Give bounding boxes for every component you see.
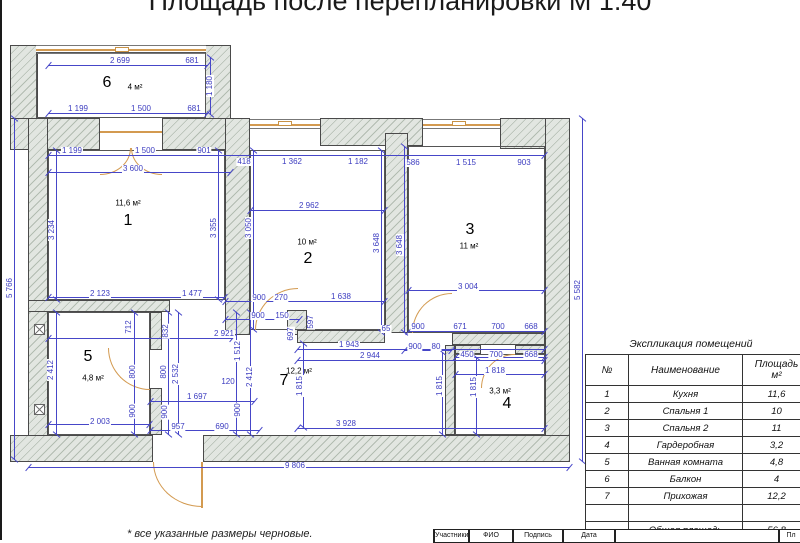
table-row: 2Спальня 110 [586, 403, 800, 420]
dimension-label: 1 515 [455, 159, 477, 167]
dimension-label: 832 [162, 323, 170, 338]
dimension-line [225, 301, 385, 302]
table-row [586, 505, 800, 522]
dimension-label: 3 648 [373, 232, 381, 254]
stamp-cell: Пл [779, 529, 800, 543]
dimension-label: 5 766 [6, 277, 14, 299]
explication-table: № Наименование Площадь м² 1Кухня11,62Спа… [585, 354, 800, 539]
row-num: 1 [586, 386, 629, 403]
table-row: 1Кухня11,6 [586, 386, 800, 403]
wall-segment [203, 435, 570, 462]
dimension-label: 120 [220, 378, 235, 386]
dimension-line [253, 150, 254, 330]
dimension-label: 2 412 [246, 366, 254, 388]
dimension-line [14, 118, 15, 460]
row-num: 4 [586, 437, 629, 454]
dimension-label: 800 [129, 364, 137, 379]
dimension-label: 681 [186, 105, 201, 113]
window-mark [452, 121, 466, 126]
dimension-label: 1 199 [67, 105, 89, 113]
dimension-label: 900 [234, 402, 242, 417]
dimension-label: 700 [490, 323, 505, 331]
dimension-label: 957 [170, 423, 185, 431]
dimension-label: 1 180 [206, 75, 214, 97]
row-area [743, 505, 800, 522]
room-number: 6 [103, 74, 112, 92]
dimension-label: 700 [488, 351, 503, 359]
table-row: 6Балкон4 [586, 471, 800, 488]
dimension-label: 2 412 [47, 359, 55, 381]
stamp-cell: Участники [433, 529, 469, 543]
row-name: Спальня 1 [629, 403, 743, 420]
dimension-label: 1 815 [470, 376, 478, 398]
dimension-label: 586 [405, 159, 420, 167]
room-number: 3 [466, 221, 475, 239]
dimension-label: 2 944 [359, 352, 381, 360]
row-name: Прихожая [629, 488, 743, 505]
stamp-cell: ФИО [469, 529, 513, 543]
dimension-label: 3 648 [396, 234, 404, 256]
row-area: 4 [743, 471, 800, 488]
room-area-label: 11 м² [460, 242, 479, 251]
dimension-line [408, 331, 545, 332]
room-area-label: 11,6 м² [115, 199, 140, 208]
room-area-label: 10 м² [297, 238, 316, 247]
stamp-cell: Дата [563, 529, 615, 543]
wall-segment [10, 118, 100, 150]
room-number: 5 [84, 348, 93, 366]
dimension-label: 150 [274, 312, 289, 320]
dimension-label: 3 600 [122, 165, 144, 173]
dimension-line [48, 113, 208, 114]
stamp-cell: Подпись [513, 529, 563, 543]
table-row: 5Ванная комната4,8 [586, 454, 800, 471]
dimension-label: 900 [407, 343, 422, 351]
row-area: 4,8 [743, 454, 800, 471]
dimension-label: 1 818 [484, 367, 506, 375]
row-name: Балкон [629, 471, 743, 488]
row-num: 3 [586, 420, 629, 437]
dimension-line [218, 150, 219, 300]
dimension-line [48, 65, 208, 66]
row-area: 11 [743, 420, 800, 437]
dimension-label: 270 [273, 294, 288, 302]
dimension-label: 900 [129, 403, 137, 418]
dimension-label: 2 962 [298, 202, 320, 210]
dimension-label: 697 [287, 326, 295, 341]
dimension-label: 2 123 [89, 290, 111, 298]
row-num [586, 505, 629, 522]
table-row: 3Спальня 211 [586, 420, 800, 437]
row-num: 5 [586, 454, 629, 471]
dimension-label: 2 699 [109, 57, 131, 65]
dimension-label: 1 199 [61, 147, 83, 155]
dimension-label: 800 [160, 364, 168, 379]
table-row: 7Прихожая12,2 [586, 488, 800, 505]
dimension-label: 901 [196, 147, 211, 155]
entrance-door-leaf [201, 462, 203, 508]
dimension-label: 2 003 [89, 418, 111, 426]
dimension-label: 900 [250, 312, 265, 320]
dimension-label: 1 500 [134, 147, 156, 155]
dimension-label: 1 500 [130, 105, 152, 113]
footnote: * все указанные размеры черновые. [127, 528, 313, 540]
dimension-line [48, 338, 233, 339]
dimension-label: 668 [523, 323, 538, 331]
title-block-strip: УчастникиФИОПодписьДатаПл [433, 529, 800, 543]
table-row: 4Гардеробная3,2 [586, 437, 800, 454]
row-name: Ванная комната [629, 454, 743, 471]
table-header-row: № Наименование Площадь м² [586, 355, 800, 386]
room-explication: Экспликация помещений № Наименование Пло… [585, 338, 800, 539]
dimension-label: 1 512 [234, 340, 242, 362]
dimension-line [150, 430, 260, 431]
dimension-line [250, 210, 385, 211]
dimension-label: 80 [431, 343, 442, 351]
window-mark [278, 121, 292, 126]
dimension-label: 65 [381, 325, 392, 333]
row-num: 7 [586, 488, 629, 505]
dimension-label: 712 [125, 319, 133, 334]
wall-segment [452, 333, 545, 345]
row-name: Гардеробная [629, 437, 743, 454]
row-area: 3,2 [743, 437, 800, 454]
dimension-label: 1 815 [436, 375, 444, 397]
dimension-label: 900 [251, 294, 266, 302]
dimension-line [56, 312, 57, 435]
dimension-label: 450 [459, 351, 474, 359]
dimension-label: 597 [307, 314, 315, 329]
dimension-label: 3 928 [335, 420, 357, 428]
dimension-label: 668 [523, 351, 538, 359]
room-area-label: 4 м² [128, 83, 143, 92]
dimension-label: 900 [410, 323, 425, 331]
dimension-label: 418 [236, 158, 251, 166]
room-number: 4 [503, 395, 512, 413]
col-header-num: № [586, 355, 629, 386]
wall-segment [10, 435, 153, 462]
balcony-door-threshold [100, 131, 162, 133]
row-num: 6 [586, 471, 629, 488]
room-area-label: 3,3 м² [489, 387, 511, 396]
dimension-line [582, 118, 583, 462]
wall-fixture-symbol [34, 404, 45, 415]
room-area-label: 4,8 м² [82, 374, 104, 383]
dimension-label: 1 943 [338, 341, 360, 349]
row-area: 10 [743, 403, 800, 420]
dimension-label: 2 532 [172, 363, 180, 385]
wall-segment [28, 300, 170, 312]
dimension-label: 3 355 [210, 217, 218, 239]
room-area-label: 12,2 м² [286, 367, 312, 376]
dimension-label: 903 [516, 159, 531, 167]
dimension-line [56, 150, 57, 300]
dimension-label: 1 362 [281, 158, 303, 166]
dimension-line [381, 150, 382, 333]
room-number: 2 [304, 250, 313, 268]
wall-fixture-symbol [34, 324, 45, 335]
wall-segment [545, 118, 570, 462]
dimension-label: 5 582 [574, 279, 582, 301]
row-num: 2 [586, 403, 629, 420]
row-name [629, 505, 743, 522]
row-area: 12,2 [743, 488, 800, 505]
dimension-label: 2 921 [213, 330, 235, 338]
dimension-label: 1 815 [296, 375, 304, 397]
col-header-area: Площадь м² [743, 355, 800, 386]
table-title: Экспликация помещений [585, 338, 797, 350]
row-name: Кухня [629, 386, 743, 403]
dimension-label: 1 638 [330, 293, 352, 301]
dimension-label: 1 182 [347, 158, 369, 166]
col-header-name: Наименование [629, 355, 743, 386]
dimension-label: 3 234 [48, 219, 56, 241]
entrance-door-arc [153, 462, 202, 507]
dimension-line [297, 428, 545, 429]
dimension-label: 3 050 [245, 217, 253, 239]
dimension-line [48, 155, 545, 156]
dimension-label: 3 004 [457, 283, 479, 291]
dimension-label: 681 [184, 57, 199, 65]
dimension-line [297, 360, 545, 361]
dimension-label: 1 477 [181, 290, 203, 298]
dimension-label: 900 [161, 404, 169, 419]
dimension-label: 1 697 [186, 393, 208, 401]
dimension-label: 690 [214, 423, 229, 431]
room-number: 1 [124, 212, 133, 230]
wall-segment [10, 45, 38, 120]
dimension-label: 671 [452, 323, 467, 331]
dimension-label: 9 806 [284, 462, 306, 470]
dimension-line [404, 146, 405, 333]
row-name: Спальня 2 [629, 420, 743, 437]
stamp-cell [615, 529, 779, 543]
row-area: 11,6 [743, 386, 800, 403]
